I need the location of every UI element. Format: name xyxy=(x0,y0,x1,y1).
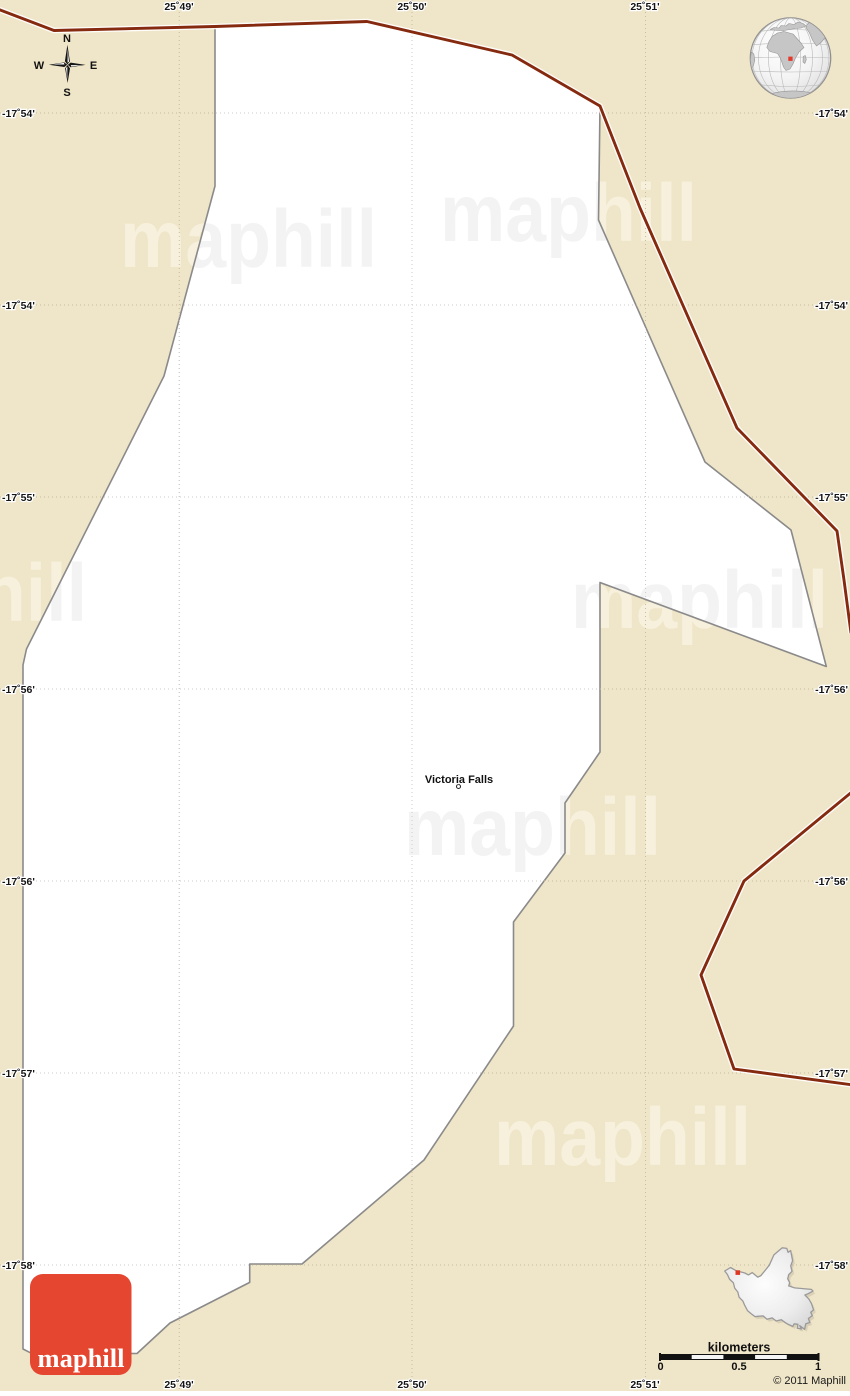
svg-text:-17˚58': -17˚58' xyxy=(2,1260,35,1272)
svg-text:-17˚54': -17˚54' xyxy=(2,300,35,312)
svg-text:25˚50': 25˚50' xyxy=(397,1,426,13)
svg-text:-17˚56': -17˚56' xyxy=(815,684,848,696)
svg-text:S: S xyxy=(63,87,70,99)
svg-text:25˚50': 25˚50' xyxy=(397,1379,426,1391)
svg-text:Victoria Falls: Victoria Falls xyxy=(425,774,493,786)
svg-text:0.5: 0.5 xyxy=(731,1361,746,1373)
svg-text:25˚51': 25˚51' xyxy=(630,1,659,13)
svg-text:© 2011 Maphill: © 2011 Maphill xyxy=(773,1375,846,1387)
svg-text:-17˚55': -17˚55' xyxy=(2,492,35,504)
svg-text:-17˚54': -17˚54' xyxy=(2,108,35,120)
svg-text:-17˚54': -17˚54' xyxy=(815,108,848,120)
svg-text:25˚49': 25˚49' xyxy=(164,1379,193,1391)
svg-text:-17˚58': -17˚58' xyxy=(815,1260,848,1272)
svg-text:kilometers: kilometers xyxy=(708,1341,771,1355)
svg-text:25˚51': 25˚51' xyxy=(630,1379,659,1391)
svg-text:1: 1 xyxy=(815,1361,821,1373)
svg-text:E: E xyxy=(90,60,97,72)
svg-text:N: N xyxy=(63,33,71,45)
svg-text:0: 0 xyxy=(657,1361,663,1373)
svg-text:-17˚56': -17˚56' xyxy=(2,876,35,888)
svg-text:maphill: maphill xyxy=(38,1343,125,1373)
svg-text:-17˚55': -17˚55' xyxy=(815,492,848,504)
svg-text:maphill: maphill xyxy=(494,1092,751,1183)
svg-text:-17˚56': -17˚56' xyxy=(815,876,848,888)
svg-text:-17˚57': -17˚57' xyxy=(2,1068,35,1080)
svg-text:-17˚57': -17˚57' xyxy=(815,1068,848,1080)
svg-text:W: W xyxy=(34,60,45,72)
svg-text:-17˚54': -17˚54' xyxy=(815,300,848,312)
svg-text:-17˚56': -17˚56' xyxy=(2,684,35,696)
svg-text:25˚49': 25˚49' xyxy=(164,1,193,13)
